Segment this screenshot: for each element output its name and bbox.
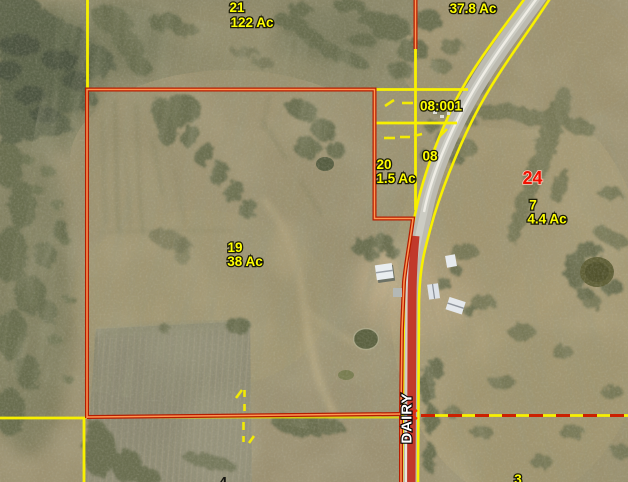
svg-text:08: 08 — [422, 149, 438, 164]
svg-text:3: 3 — [514, 472, 522, 482]
svg-text:20: 20 — [376, 157, 391, 172]
svg-text:7: 7 — [529, 198, 537, 213]
svg-text:1.5 Ac: 1.5 Ac — [376, 171, 416, 186]
svg-text:38 Ac: 38 Ac — [227, 254, 263, 269]
svg-text:4: 4 — [219, 474, 228, 482]
svg-text:DAIRY: DAIRY — [399, 392, 416, 443]
svg-text:4.4 Ac: 4.4 Ac — [527, 212, 567, 227]
svg-text:122 Ac: 122 Ac — [230, 15, 274, 30]
svg-text:21: 21 — [229, 0, 245, 15]
svg-text:19: 19 — [227, 240, 242, 255]
svg-text:37.8 Ac: 37.8 Ac — [450, 1, 497, 16]
svg-text:24: 24 — [522, 168, 542, 188]
svg-text:08:001: 08:001 — [420, 99, 463, 114]
